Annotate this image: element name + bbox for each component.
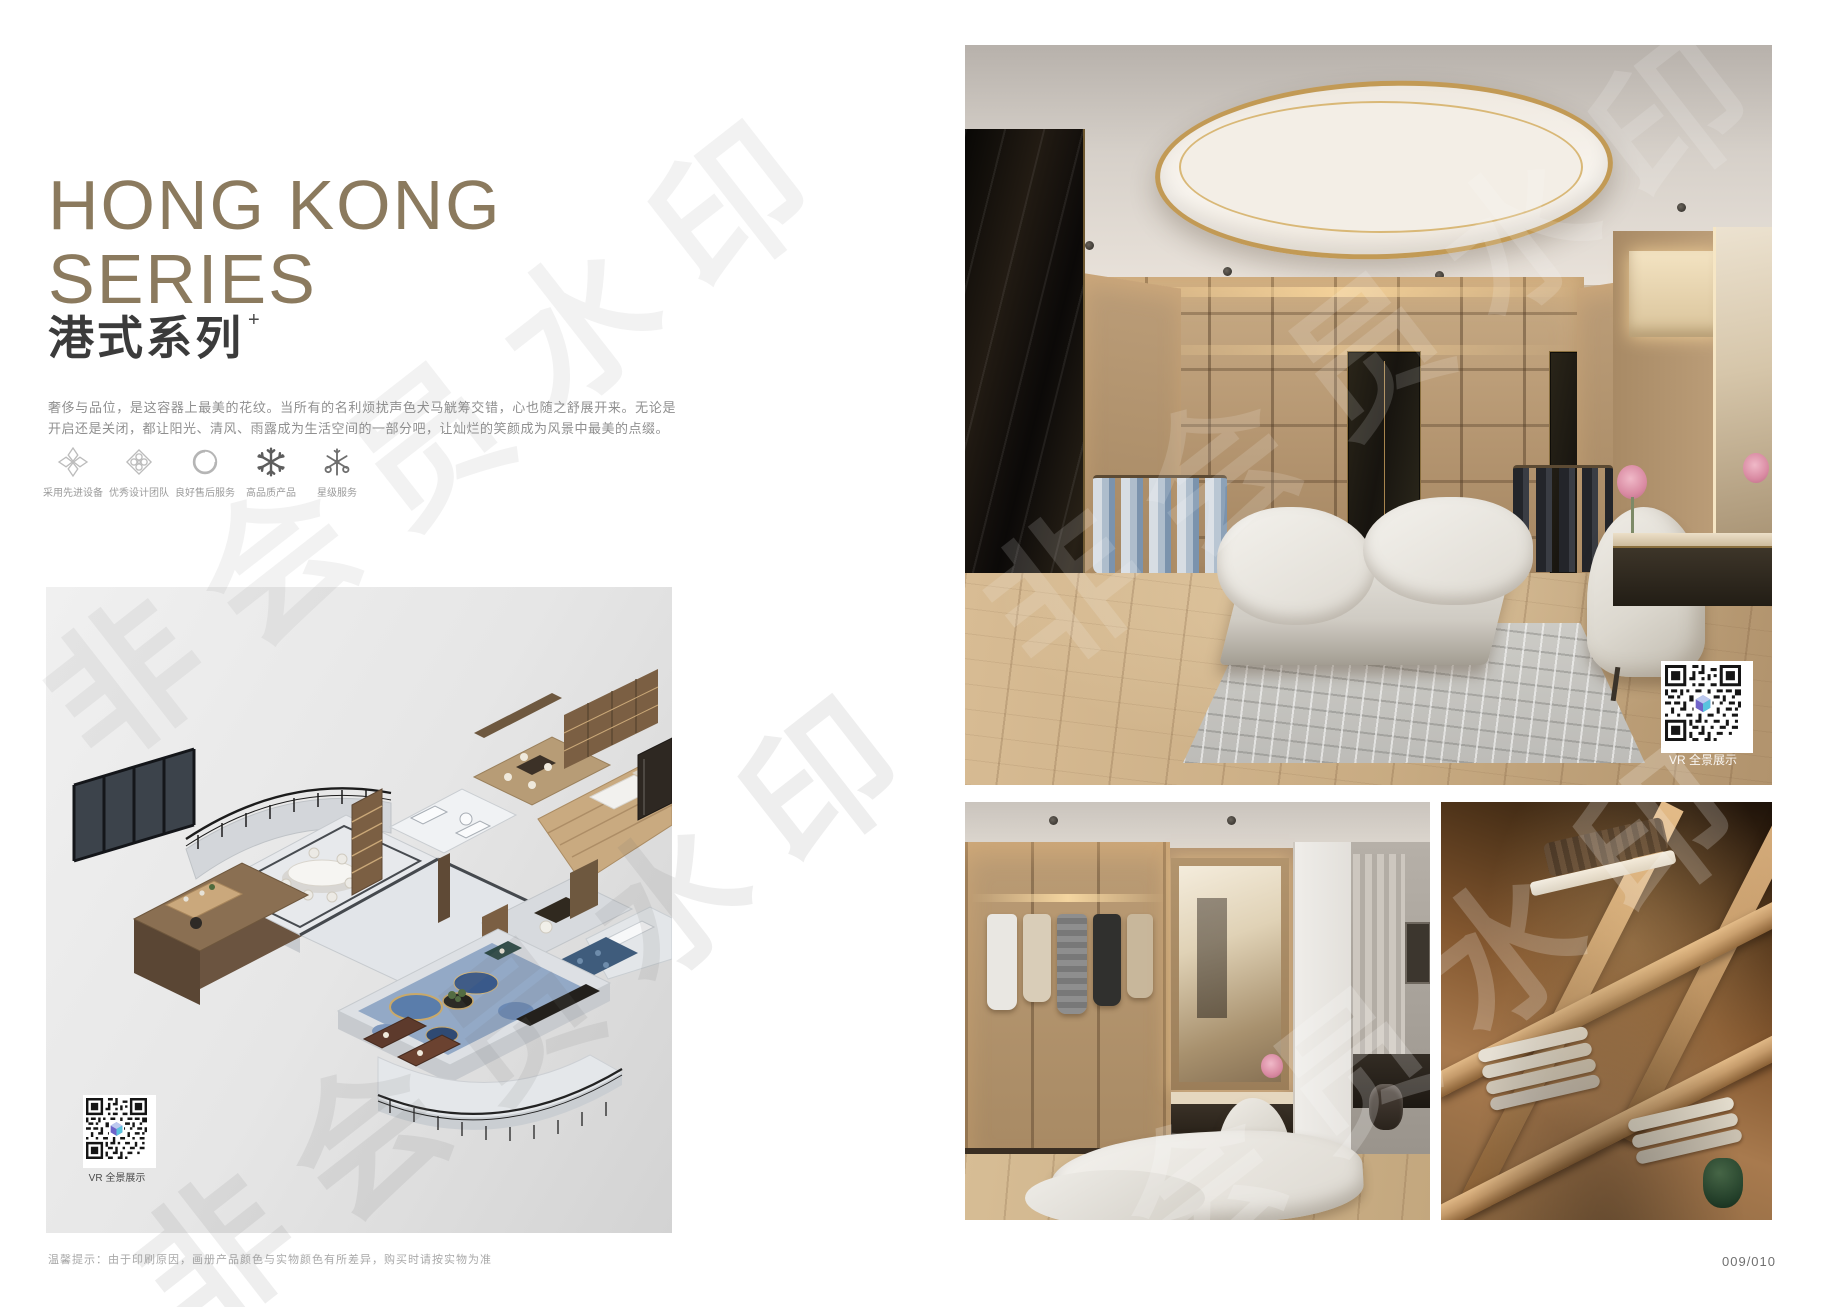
- curtain-wall: [1353, 854, 1405, 1054]
- feature-label: 采用先进设备: [43, 484, 103, 499]
- spotlight: [1227, 816, 1236, 825]
- catalog-spread: HONG KONG SERIES 港式系列+ 奢侈与品位，是这容器上最美的花纹。…: [0, 0, 1836, 1307]
- draped-blanket: [1217, 507, 1375, 625]
- drum-table: [1369, 1084, 1403, 1130]
- footer-disclaimer: 温馨提示：由于印刷原因，画册产品颜色与实物颜色有所差异，购买时请按实物为准: [48, 1251, 492, 1267]
- series-title-en: HONG KONG SERIES: [48, 168, 502, 316]
- vr-qr-caption: VR 全景展示: [76, 1169, 158, 1184]
- feature-label: 优秀设计团队: [109, 484, 169, 499]
- page-number: 009/010: [1722, 1254, 1776, 1269]
- snowflake-icon: [255, 446, 287, 478]
- shelf-light: [971, 894, 1165, 902]
- feature-after-sales: 良好售后服务: [172, 446, 238, 499]
- clover-icon: [123, 446, 155, 478]
- shelf-closeup-photo: [1441, 802, 1772, 1220]
- feature-star-service: 星级服务: [304, 446, 370, 499]
- feature-design-team: 优秀设计团队: [106, 446, 172, 499]
- flower-vase: [1743, 453, 1769, 483]
- lighting-overlay: [1441, 802, 1772, 1220]
- vr-qr-caption: VR 全景展示: [1655, 751, 1751, 768]
- floorplan-panel: VR 全景展示: [46, 587, 672, 1233]
- feature-row: 采用先进设备 优秀设计团队 良好售后服务: [40, 446, 370, 499]
- vr-qr-code: [83, 1095, 156, 1168]
- hanging-clothes-light: [1093, 475, 1227, 574]
- flower-stem: [1631, 497, 1634, 533]
- vanity-top: [1613, 533, 1772, 546]
- ring-icon: [189, 446, 221, 478]
- vanity-drawers: [1613, 546, 1772, 606]
- mirror-reflection: [1197, 898, 1227, 1018]
- hanging-garment: [1127, 914, 1153, 998]
- spotlight: [1085, 241, 1094, 250]
- ceiling-ring-inner: [1179, 101, 1583, 233]
- vr-qr-code: [1661, 661, 1753, 753]
- series-intro-text: 奢侈与品位，是这容器上最美的花纹。当所有的名利烦扰声色犬马觥筹交错，心也随之舒展…: [48, 397, 676, 439]
- spotlight: [1223, 267, 1232, 276]
- title-superscript: +: [248, 309, 263, 331]
- series-title-cn: 港式系列+: [48, 302, 263, 368]
- feature-label: 高品质产品: [246, 484, 296, 499]
- wall-art: [1405, 922, 1430, 984]
- feature-advanced-equipment: 采用先进设备: [40, 446, 106, 499]
- hanging-garment: [987, 914, 1017, 1010]
- feature-quality-product: 高品质产品: [238, 446, 304, 499]
- hanging-garment: [1093, 914, 1121, 1006]
- starflake-icon: [321, 446, 353, 478]
- pinwheel-icon: [57, 446, 89, 478]
- dressing-area-photo: [965, 802, 1430, 1220]
- vanity-mirror: [1179, 866, 1281, 1082]
- feature-label: 良好售后服务: [175, 484, 235, 499]
- flower-vase: [1261, 1054, 1283, 1078]
- mirror-panel: [1713, 227, 1772, 545]
- spotlight: [1049, 816, 1058, 825]
- bed-blanket-fold: [1025, 1170, 1205, 1220]
- lit-niche: [1629, 251, 1721, 337]
- draped-blanket: [1363, 497, 1533, 605]
- feature-label: 星级服务: [317, 484, 357, 499]
- hanging-garment: [1023, 914, 1051, 1002]
- white-wall-panel: [1293, 842, 1353, 1154]
- series-title-line1: HONG KONG: [48, 168, 502, 242]
- flower-vase: [1617, 465, 1647, 499]
- hanging-garment: [1057, 914, 1087, 1014]
- spotlight: [1677, 203, 1686, 212]
- walkin-closet-photo: VR 全景展示: [965, 45, 1772, 785]
